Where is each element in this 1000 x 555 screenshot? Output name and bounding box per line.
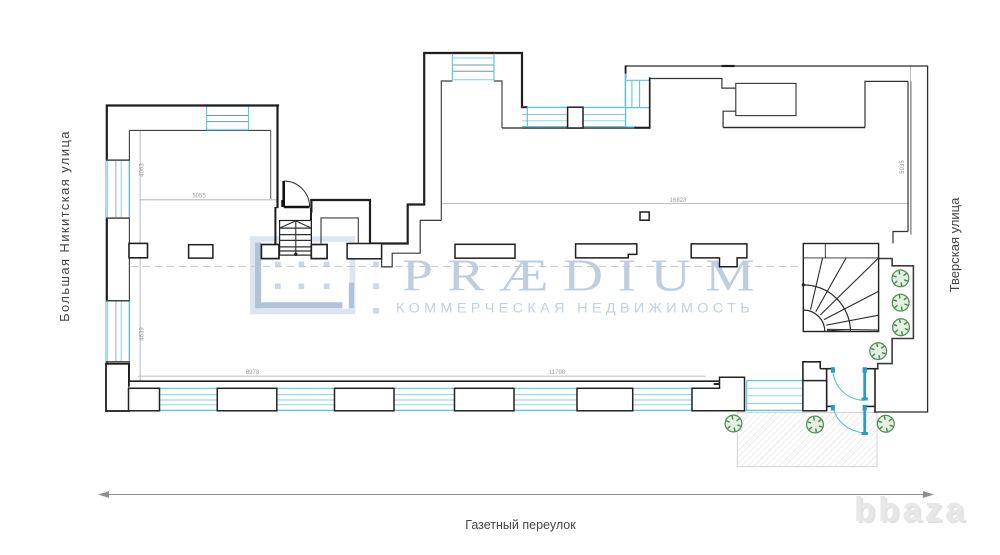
svg-text:bbaza: bbaza [854, 491, 965, 529]
svg-text:5055: 5055 [192, 194, 206, 200]
svg-text:КОММЕРЧЕСКАЯ НЕДВИЖИМОСТЬ: КОММЕРЧЕСКАЯ НЕДВИЖИМОСТЬ [396, 300, 754, 315]
svg-text:5935: 5935 [900, 160, 906, 174]
svg-text:Тверская улица: Тверская улица [947, 197, 962, 292]
svg-text:16823: 16823 [670, 198, 687, 204]
svg-text:11798: 11798 [549, 370, 566, 376]
svg-text:4063: 4063 [140, 163, 146, 177]
svg-text:4639: 4639 [140, 327, 146, 341]
svg-text:8978: 8978 [246, 370, 260, 376]
svg-text:Большая Никитская улица: Большая Никитская улица [57, 130, 72, 322]
svg-text:Газетный переулок: Газетный переулок [465, 518, 576, 532]
